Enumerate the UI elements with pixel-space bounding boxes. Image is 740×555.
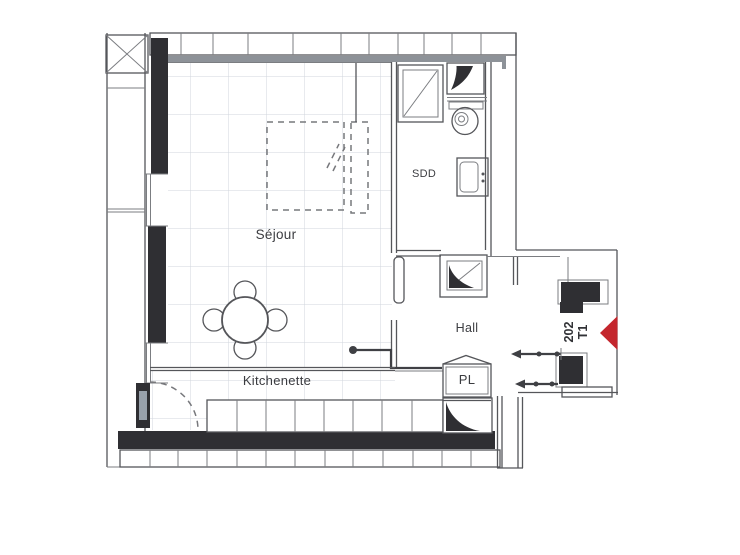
counter bbox=[207, 400, 443, 432]
unit-type: T1 bbox=[576, 310, 590, 354]
bottom-wall bbox=[118, 431, 500, 467]
sink-icon bbox=[447, 63, 487, 101]
window-icon bbox=[147, 343, 151, 383]
room-label-pl: PL bbox=[443, 372, 491, 387]
wall-pier bbox=[148, 226, 166, 343]
sdd-room bbox=[392, 62, 492, 303]
arrow-left-icon bbox=[511, 350, 521, 359]
door-pier bbox=[559, 356, 583, 384]
toilet-icon bbox=[449, 102, 483, 135]
left-wall-windows bbox=[136, 38, 168, 428]
room-label-hall: Hall bbox=[443, 321, 491, 335]
hatch-icon bbox=[106, 35, 148, 73]
entrance-arrow-icon bbox=[600, 316, 618, 350]
washbasin-icon bbox=[457, 158, 488, 196]
door-leaf-icon bbox=[394, 257, 404, 303]
water-heater-icon bbox=[440, 255, 487, 297]
floor-plan-drawing bbox=[0, 0, 740, 555]
door-pier bbox=[561, 282, 600, 302]
floor-plan: Séjour SDD Hall PL Kitchenette 202 T1 bbox=[0, 0, 740, 555]
room-label-kitchenette: Kitchenette bbox=[237, 373, 317, 388]
arrow-left-icon bbox=[515, 380, 525, 389]
unit-number: 202 bbox=[562, 310, 576, 354]
unit-label: 202 T1 bbox=[562, 310, 602, 354]
window-icon bbox=[147, 174, 151, 226]
door-clearance-arrows bbox=[511, 348, 561, 389]
wall-pier bbox=[151, 38, 168, 174]
room-label-sejour: Séjour bbox=[240, 227, 312, 242]
entrance bbox=[487, 33, 618, 468]
room-label-sdd: SDD bbox=[404, 168, 444, 180]
shower-icon bbox=[398, 65, 443, 122]
table-icon bbox=[222, 297, 268, 343]
